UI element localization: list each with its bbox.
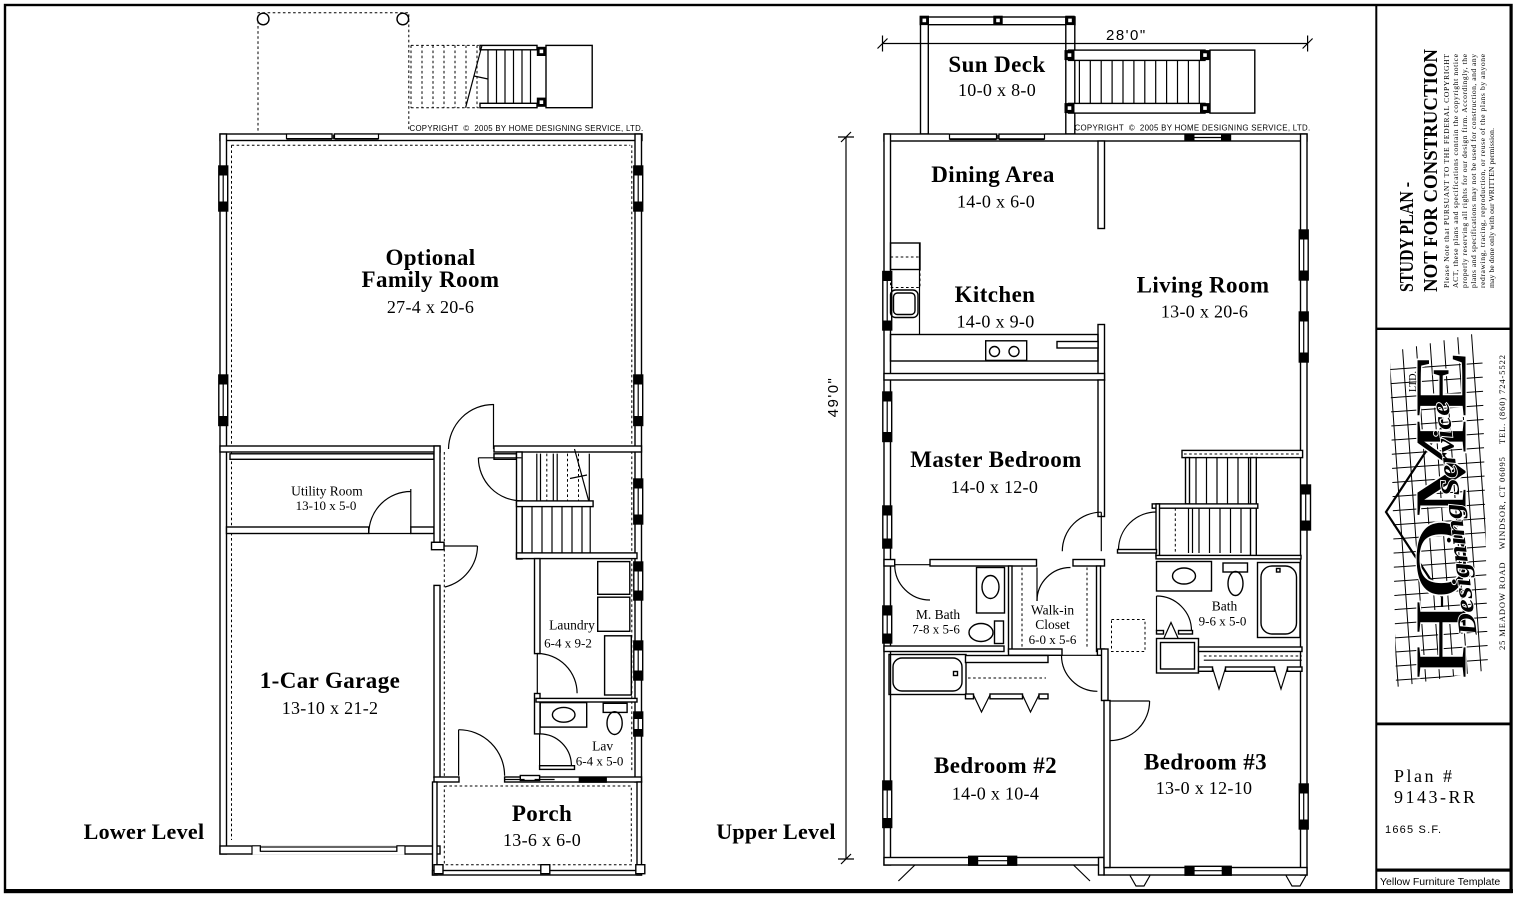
svg-text:Closet: Closet	[1035, 617, 1070, 632]
svg-text:13-0 x 20-6: 13-0 x 20-6	[1161, 302, 1248, 322]
svg-text:ACT, these plans and specifica: ACT, these plans and specifications cont…	[1451, 53, 1460, 288]
svg-text:27-4 x 20-6: 27-4 x 20-6	[387, 297, 474, 317]
svg-text:13-10 x 21-2: 13-10 x 21-2	[282, 698, 379, 718]
svg-text:Living Room: Living Room	[1137, 273, 1270, 298]
svg-text:10-0 x 8-0: 10-0 x 8-0	[958, 80, 1036, 100]
svg-text:Yellow Furniture Template: Yellow Furniture Template	[1380, 876, 1500, 888]
svg-text:14-0 x 9-0: 14-0 x 9-0	[957, 312, 1035, 332]
svg-text:Master Bedroom: Master Bedroom	[910, 447, 1081, 472]
svg-text:6-0 x 5-6: 6-0 x 5-6	[1029, 632, 1077, 647]
svg-text:14-0 x 6-0: 14-0 x 6-0	[957, 192, 1035, 212]
svg-text:1-Car Garage: 1-Car Garage	[260, 668, 400, 693]
svg-text:7-8 x 5-6: 7-8 x 5-6	[912, 622, 960, 637]
svg-text:1665 S.F.: 1665 S.F.	[1385, 824, 1442, 836]
svg-text:Bedroom #3: Bedroom #3	[1144, 750, 1267, 775]
svg-text:Bedroom #2: Bedroom #2	[934, 753, 1057, 778]
svg-text:COPYRIGHT © 2005 BY HOME DES: COPYRIGHT © 2005 BY HOME DESIGNING SERVI…	[1075, 124, 1311, 133]
svg-text:49'0": 49'0"	[825, 377, 842, 418]
svg-text:14-0 x 12-0: 14-0 x 12-0	[951, 477, 1038, 497]
svg-text:Lower Level: Lower Level	[84, 819, 205, 844]
svg-text:COPYRIGHT © 2005 BY HOME DES: COPYRIGHT © 2005 BY HOME DESIGNING SERVI…	[410, 124, 644, 133]
svg-text:Laundry: Laundry	[549, 618, 595, 633]
svg-text:13-0 x 12-10: 13-0 x 12-10	[1156, 778, 1253, 798]
svg-text:plans and specifications may n: plans and specifications may not be used…	[1469, 54, 1478, 288]
svg-text:Utility Room: Utility Room	[291, 484, 363, 499]
svg-text:13-10 x 5-0: 13-10 x 5-0	[296, 498, 357, 513]
svg-text:6-4 x 9-2: 6-4 x 9-2	[544, 636, 592, 651]
svg-text:28'0": 28'0"	[1106, 27, 1147, 44]
svg-text:13-6 x 6-0: 13-6 x 6-0	[503, 830, 581, 850]
svg-text:Dining Area: Dining Area	[931, 162, 1055, 187]
svg-text:properly reserving all rights: properly reserving all rights for our de…	[1460, 53, 1469, 288]
svg-text:6-4 x 5-0: 6-4 x 5-0	[576, 754, 624, 769]
svg-text:may be done only with our WRIT: may be done only with our WRITTEN permis…	[1487, 128, 1496, 288]
svg-text:Bath: Bath	[1212, 599, 1238, 614]
svg-text:redrawing, tracing, reproducti: redrawing, tracing, reproduction, or reu…	[1478, 53, 1487, 288]
svg-text:Sun Deck: Sun Deck	[948, 52, 1045, 77]
svg-text:Plan #: Plan #	[1394, 766, 1455, 786]
svg-text:STUDY PLAN -: STUDY PLAN -	[1397, 182, 1418, 292]
svg-text:14-0 x 10-4: 14-0 x 10-4	[952, 784, 1039, 804]
svg-text:Porch: Porch	[512, 801, 572, 826]
svg-text:Kitchen: Kitchen	[955, 282, 1036, 307]
svg-text:9143-RR: 9143-RR	[1394, 787, 1478, 807]
svg-text:Upper Level: Upper Level	[716, 819, 836, 844]
svg-text:9-6 x 5-0: 9-6 x 5-0	[1199, 614, 1247, 629]
svg-text:LTD.: LTD.	[1408, 371, 1419, 392]
svg-text:Family Room: Family Room	[362, 267, 500, 292]
svg-text:25 MEADOW ROAD WINDSOR, CT: 25 MEADOW ROAD WINDSOR, CT 06095 TEL. (8…	[1497, 355, 1507, 650]
svg-text:M. Bath: M. Bath	[916, 607, 961, 622]
svg-text:Please Note that PURSUANT TO T: Please Note that PURSUANT TO THE FEDERAL…	[1442, 54, 1451, 288]
svg-text:Lav: Lav	[592, 739, 613, 754]
svg-text:NOT FOR CONSTRUCTION: NOT FOR CONSTRUCTION	[1421, 49, 1442, 292]
svg-text:Walk-in: Walk-in	[1031, 603, 1074, 618]
